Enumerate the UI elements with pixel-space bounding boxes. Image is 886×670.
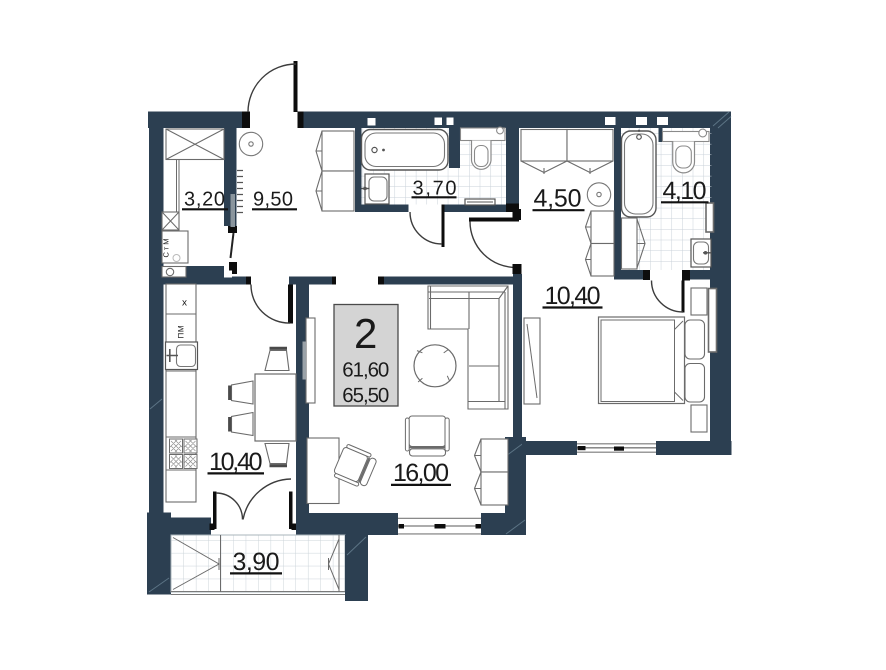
svg-text:4,10: 4,10 (663, 177, 707, 205)
svg-text:10,40: 10,40 (209, 448, 263, 476)
svg-text:10,40: 10,40 (545, 282, 601, 310)
svg-text:61,60: 61,60 (342, 359, 389, 382)
svg-text:x: x (182, 298, 187, 309)
svg-text:3,20: 3,20 (184, 189, 225, 211)
svg-text:3,90: 3,90 (233, 548, 280, 576)
svg-text:СтМ: СтМ (162, 239, 171, 258)
svg-text:9,50: 9,50 (253, 189, 293, 211)
svg-text:65,50: 65,50 (342, 384, 389, 407)
svg-text:2: 2 (354, 310, 377, 357)
svg-text:ПМ: ПМ (177, 325, 186, 338)
svg-text:4,50: 4,50 (534, 185, 582, 213)
svg-text:16,00: 16,00 (393, 459, 449, 487)
